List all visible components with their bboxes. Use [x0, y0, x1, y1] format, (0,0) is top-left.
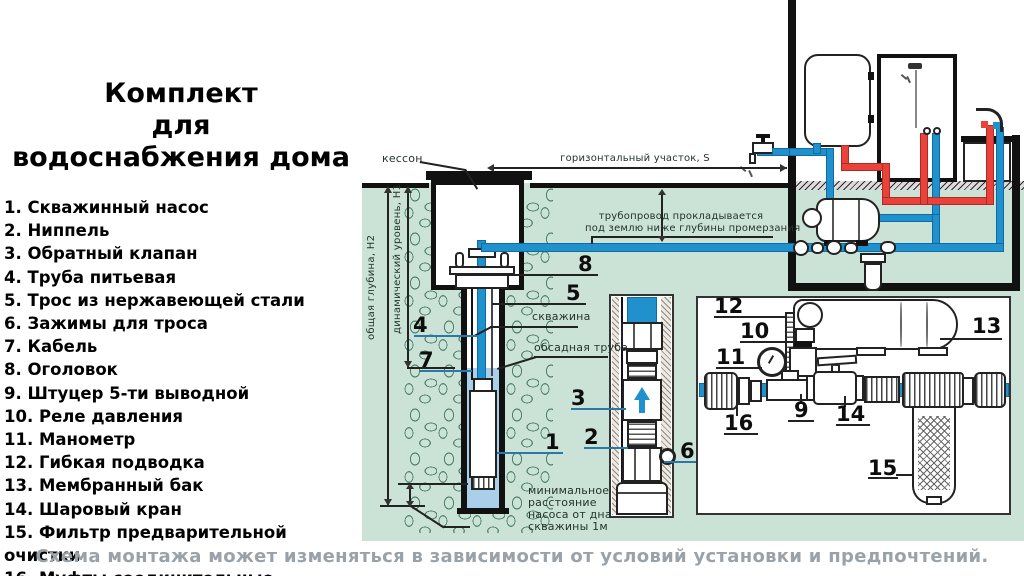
dimension-tick — [380, 505, 425, 507]
nipple — [627, 421, 657, 447]
callout-10: 10 — [740, 321, 769, 342]
frost-note-underline — [591, 236, 773, 238]
coupling-collar — [962, 377, 974, 405]
callout-16: 16 — [724, 413, 753, 434]
callout-15: 15 — [868, 458, 897, 479]
arrow-right-icon — [780, 164, 787, 172]
mini-pump — [802, 208, 822, 228]
nut-facet — [633, 324, 635, 348]
footer-caption: Схема монтажа может изменяться в зависим… — [0, 546, 1024, 567]
cold-tap-mark — [993, 122, 1000, 129]
frost-note-line: под землю ниже глубины промерзания — [585, 223, 777, 235]
pump-shoulder-line — [618, 492, 666, 494]
legend-list: 1. Скважинный насос 2. Ниппель 3. Обратн… — [4, 196, 362, 576]
tank-seam — [832, 200, 834, 240]
spray-line — [749, 170, 753, 177]
hot-tap-mark — [981, 121, 988, 128]
union-blob — [826, 240, 842, 255]
legend-item: 16. Муфты соединительные — [4, 567, 362, 576]
callout-4: 4 — [413, 315, 428, 336]
flow-arrow-stem — [639, 399, 645, 413]
casing-wall — [499, 288, 505, 510]
arrow-up-icon — [658, 189, 666, 195]
filter-nub — [926, 496, 942, 505]
legend-item: 7. Кабель — [4, 335, 362, 358]
callout-13: 13 — [972, 316, 1001, 337]
water-heater — [804, 54, 871, 147]
hot-pipe-segment — [986, 125, 994, 205]
legend-item: 9. Штуцер 5-ти выводной — [4, 382, 362, 405]
page-title: Комплект для водоснабжения дома — [0, 78, 362, 174]
tank-seam — [926, 302, 928, 347]
callout-5: 5 — [566, 283, 581, 304]
legend-item: 5. Трос из нержавеющей стали — [4, 289, 362, 312]
legend-item: 8. Оголовок — [4, 358, 362, 381]
heater-thermostat-nub — [868, 72, 874, 80]
title-line: водоснабжения дома — [0, 142, 362, 174]
coupling-nut — [974, 372, 1006, 408]
ball-valve-body — [813, 371, 857, 405]
pipe-segment — [932, 133, 940, 222]
drinking-pipe — [477, 240, 486, 382]
pump-cable — [471, 288, 473, 380]
dimension-line-h1 — [407, 187, 409, 368]
safety-rope — [491, 288, 493, 376]
legend-item: 1. Скважинный насос — [4, 196, 362, 219]
arrow-left-icon — [487, 164, 494, 172]
filter-mesh — [918, 416, 950, 490]
pointer-line — [534, 356, 608, 358]
shower-hose — [915, 70, 917, 128]
pump-shoulder — [616, 482, 668, 515]
pointer-line — [444, 526, 470, 528]
pipe-segment — [996, 127, 1004, 251]
water-supply-scheme: Комплект для водоснабжения дома 1. Скваж… — [0, 0, 1024, 576]
threaded-nipple — [627, 364, 657, 379]
hot-pipe-segment — [920, 133, 928, 205]
min-distance-note: минимальное расстояние насоса от дна скв… — [528, 485, 612, 533]
tank-foot — [856, 347, 886, 356]
borehole-label: скважина — [532, 311, 591, 324]
callout-3: 3 — [571, 388, 586, 409]
callout-2: 2 — [584, 427, 599, 448]
callout-1: 1 — [545, 432, 560, 453]
mini-filter-bowl — [864, 263, 882, 291]
legend-item: 11. Манометр — [4, 428, 362, 451]
caisson-label: кессон — [382, 153, 423, 166]
valve-stem — [831, 364, 840, 373]
caisson-lid — [426, 171, 532, 180]
arrow-up-icon — [406, 483, 414, 489]
callout-12: 12 — [714, 296, 743, 317]
shower-valve-knob — [923, 127, 931, 135]
coupling-nut — [704, 372, 738, 410]
nut-facet — [650, 324, 652, 348]
tank-foot — [918, 347, 948, 356]
legend-item: 12. Гибкая подводка — [4, 451, 362, 474]
frost-note-drop — [591, 236, 593, 244]
pipe-segment — [627, 297, 657, 323]
supply-pipe — [481, 243, 1004, 252]
legend-item: 14. Шаровый кран — [4, 498, 362, 521]
mini-tank — [816, 198, 880, 242]
arrow-up-icon — [404, 186, 412, 193]
pointer-line — [420, 161, 467, 171]
house-wall-right — [1012, 135, 1020, 291]
arrow-up-icon — [384, 186, 392, 193]
mini-filter-head — [860, 253, 886, 263]
callout-14: 14 — [836, 404, 865, 425]
legend-item: 13. Мембранный бак — [4, 474, 362, 497]
callout-8: 8 — [578, 254, 593, 275]
shower-valve-knob — [933, 127, 941, 135]
hot-pipe-segment — [882, 197, 994, 205]
callout-leader — [896, 474, 914, 476]
callout-7: 7 — [419, 350, 434, 371]
callout-11: 11 — [716, 347, 745, 368]
casing-pipe-label: обсадная труба — [534, 342, 628, 355]
tank-seam — [900, 302, 902, 347]
dimension-line-s — [489, 167, 787, 169]
union-blob — [811, 242, 824, 254]
min-distance-line: скважины 1м — [528, 521, 612, 533]
filter-head — [902, 372, 964, 408]
pump-volute — [797, 302, 823, 328]
coupling-stub — [750, 380, 762, 402]
legend-item: 2. Ниппель — [4, 219, 362, 242]
fitting-collar — [626, 350, 658, 364]
arrow-down-icon — [658, 236, 666, 242]
dynamic-level-label: динамический уровень, Н1 — [392, 194, 403, 334]
house-wall-bottom — [788, 283, 1020, 291]
legend-item: 10. Реле давления — [4, 405, 362, 428]
burial-depth-line — [661, 191, 663, 241]
fitting-nut — [622, 447, 662, 482]
pointer-line — [490, 326, 578, 328]
callout-9: 9 — [794, 400, 809, 421]
total-depth-label: общая глубина, Н2 — [366, 228, 377, 340]
heater-thermostat-nub — [868, 115, 874, 123]
nut-facet — [649, 449, 651, 480]
callout-leader — [940, 338, 1002, 340]
casing-bottom — [457, 508, 509, 514]
legend-item: 3. Обратный клапан — [4, 242, 362, 265]
union-blob — [793, 240, 809, 256]
title-line: Комплект — [0, 78, 362, 110]
pipe-segment — [813, 143, 821, 154]
tank-seam — [858, 200, 860, 240]
borehole-pump — [469, 390, 497, 478]
dimension-line-h2 — [387, 187, 389, 506]
nut-facet — [634, 449, 636, 480]
ground-surface-line — [530, 183, 788, 188]
coupling-collar — [738, 377, 750, 405]
horizontal-section-label: горизонтальный участок, S — [490, 153, 780, 165]
union-blob — [844, 242, 858, 254]
title-line: для — [0, 110, 362, 142]
legend-item: 4. Труба питьевая — [4, 266, 362, 289]
corrugated-connector — [864, 376, 900, 403]
legend-item: 6. Зажимы для троса — [4, 312, 362, 335]
shower-head-icon — [908, 63, 922, 69]
frost-note: трубопровод прокладывается под землю ниж… — [585, 211, 777, 234]
pump-intake — [471, 476, 495, 490]
wellhead-body — [455, 274, 509, 289]
frost-note-line: трубопровод прокладывается — [585, 211, 777, 223]
callout-6: 6 — [680, 441, 695, 462]
